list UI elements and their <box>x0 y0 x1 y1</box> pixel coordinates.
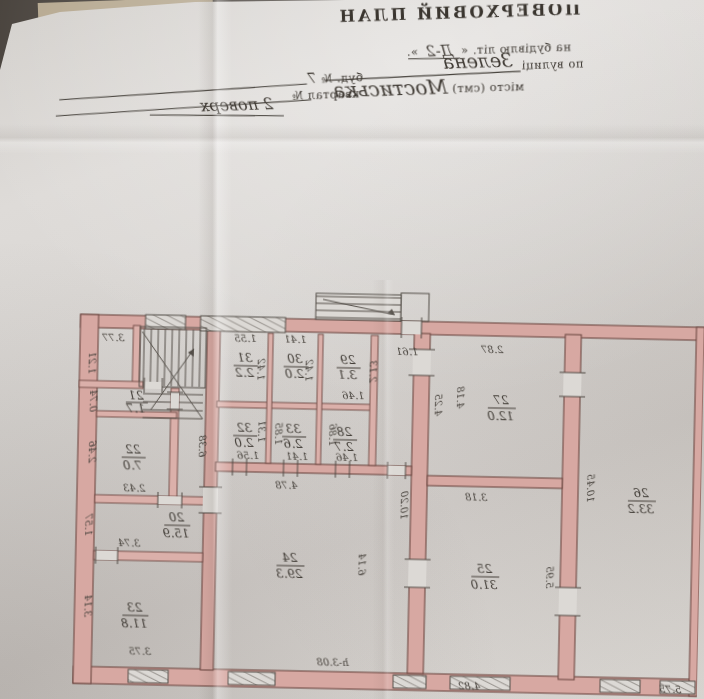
room-24-label: 2429.3 <box>275 550 304 581</box>
door-stairroom <box>144 378 162 393</box>
room-29-area: 3.1 <box>339 368 358 382</box>
dim-room29-d: 2.13 <box>367 361 378 384</box>
room-23-label: 2311.8 <box>120 600 149 631</box>
room-32-number: 32 <box>236 421 253 435</box>
room-25-label: 2531.0 <box>470 562 499 593</box>
wall-grid-col1 <box>316 334 324 464</box>
dim-stairroom-w: 3.77 <box>101 332 125 343</box>
room-31-number: 31 <box>238 351 254 365</box>
window-bottom-2 <box>228 671 275 685</box>
dim-room29-w: 1.46 <box>341 390 365 401</box>
dim-room32-d: 1.31 <box>256 421 267 443</box>
room-20-label: 2015.9 <box>162 510 191 541</box>
dim-room20-d: 1.57 <box>83 513 94 537</box>
room-29-label: 293.1 <box>336 353 361 382</box>
dim-height-note: h-3.08 <box>316 656 350 668</box>
wall-22-20 <box>95 495 204 505</box>
wall-nook <box>369 335 379 465</box>
room-20-number: 20 <box>168 510 185 524</box>
wall-grid-bottom <box>215 462 411 475</box>
room-33-area: 2.6 <box>283 437 304 451</box>
room-23-number: 23 <box>126 600 143 614</box>
dim-hall-161: 1.61 <box>397 346 419 357</box>
balcony <box>316 291 430 321</box>
street-value: Зелена <box>443 49 515 73</box>
wall-stairroom-bottom <box>79 380 143 388</box>
room-23-area: 11.8 <box>120 616 148 631</box>
form-header: ПОВЕРХОВИЙ ПЛАН на будівлю літ. « Д-2 ».… <box>53 0 585 123</box>
door-20-23 <box>95 547 117 564</box>
house-value: 7 <box>306 70 317 86</box>
dim-room27-d: 4.18 <box>455 385 466 409</box>
room-25-area: 31.0 <box>470 578 498 593</box>
dim-room23-w: 3.75 <box>129 645 152 656</box>
room-24-number: 24 <box>282 551 298 565</box>
room-31-area: 2.2 <box>234 366 255 380</box>
dim-room20-w: 3.74 <box>118 537 141 548</box>
window-bottom-3 <box>393 675 426 689</box>
door-nook <box>387 462 405 479</box>
dim-room30-w: 1.41 <box>285 334 307 345</box>
room-32-area: 2.0 <box>234 436 255 450</box>
dim-room32-w: 1.56 <box>236 450 260 461</box>
room-26-number: 26 <box>633 486 650 500</box>
dim-room33-w: 1.41 <box>287 451 309 462</box>
door-26-25 <box>554 587 581 616</box>
window-top-1 <box>200 316 285 333</box>
window-bottom-5 <box>600 679 640 693</box>
room-25-number: 25 <box>476 562 493 576</box>
dim-room28-w: 1.46 <box>335 452 359 463</box>
dim-room25-b: 4.82 <box>458 680 481 691</box>
door-26-27 <box>559 372 585 397</box>
door-24-25 <box>404 559 431 588</box>
dim-room24-w: 4.78 <box>274 479 298 490</box>
dim-room21: 0.74 <box>88 390 99 413</box>
dim-room30-d: 1.42 <box>303 359 314 382</box>
room-30-number: 30 <box>287 352 304 366</box>
window-bottom-1 <box>128 669 168 683</box>
document-title: ПОВЕРХОВИЙ ПЛАН <box>337 0 581 26</box>
room-29-number: 29 <box>340 353 357 367</box>
street-label: по вулиці <box>521 56 583 72</box>
dim-room28-d: 1.86 <box>327 423 338 447</box>
floor-plan: 2015.9 211.7 227.0 2311.8 2429.3 2531.0 … <box>73 286 704 696</box>
room-20-area: 15.9 <box>162 526 190 541</box>
floor-plan-svg: ПОВЕРХОВИЙ ПЛАН на будівлю літ. « Д-2 ».… <box>0 0 704 699</box>
dim-room26-d: 10.45 <box>585 474 597 503</box>
dim-room25-d: 5.95 <box>544 566 555 589</box>
room-30-area: 2.0 <box>284 367 305 381</box>
dim-room22-d: 2.46 <box>87 440 98 464</box>
building-close-quote: ». <box>406 45 418 59</box>
dim-wall-1020: 10.20 <box>398 490 410 520</box>
photo-of-floor-plan-document: ПОВЕРХОВИЙ ПЛАН на будівлю літ. « Д-2 ».… <box>0 0 704 699</box>
dim-room25-w: 3.18 <box>464 491 488 502</box>
room-22-label: 227.0 <box>121 442 146 472</box>
room-32-label: 322.0 <box>233 421 258 450</box>
balcony-landing <box>401 293 430 322</box>
dim-stairroom-d: 1.21 <box>86 352 97 374</box>
room-27-label: 2712.0 <box>487 393 516 424</box>
mirrored-document-content: ПОВЕРХОВИЙ ПЛАН на будівлю літ. « Д-2 ».… <box>0 0 704 699</box>
dim-room22-w: 2.43 <box>123 482 146 493</box>
dim-room24-d: 6.14 <box>356 553 367 576</box>
dim-room27-w: 2.87 <box>480 344 504 355</box>
dim-room33-d: 1.85 <box>273 423 284 446</box>
room-21-label: 211.7 <box>126 388 149 415</box>
dim-room26-b: 5.75 <box>659 684 682 695</box>
room-33-number: 33 <box>285 422 302 436</box>
wall-room27-bottom <box>427 476 562 489</box>
room-24-area: 29.3 <box>275 566 303 581</box>
city-label: місто (смт) <box>452 79 525 95</box>
room-31-label: 312.2 <box>233 351 258 380</box>
wall-grid-row <box>217 401 371 410</box>
dim-room31-w: 1.55 <box>234 333 257 344</box>
dim-hall-length: 6.38 <box>197 434 208 458</box>
dim-room23-d: 3.14 <box>82 595 93 618</box>
room-33-label: 332.6 <box>282 422 307 451</box>
dim-wall-425: 4.25 <box>433 394 444 417</box>
room-21-area: 1.7 <box>126 401 147 415</box>
dim-room31-d: 1.42 <box>255 358 266 381</box>
room-26-label: 2633.2 <box>627 486 656 517</box>
room-27-number: 27 <box>493 393 510 407</box>
room-27-area: 12.0 <box>487 409 515 424</box>
floor-note: 2 поверх <box>199 94 275 115</box>
room-22-number: 22 <box>125 442 142 456</box>
room-22-area: 7.0 <box>122 458 143 472</box>
room-26-area: 33.2 <box>627 502 655 517</box>
